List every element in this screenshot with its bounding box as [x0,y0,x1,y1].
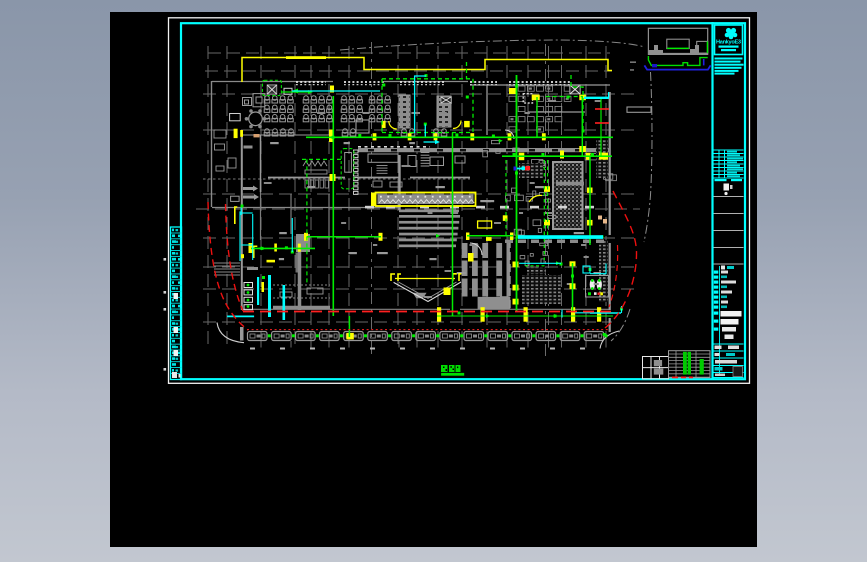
svg-text:HankyoE3: HankyoE3 [716,40,741,46]
